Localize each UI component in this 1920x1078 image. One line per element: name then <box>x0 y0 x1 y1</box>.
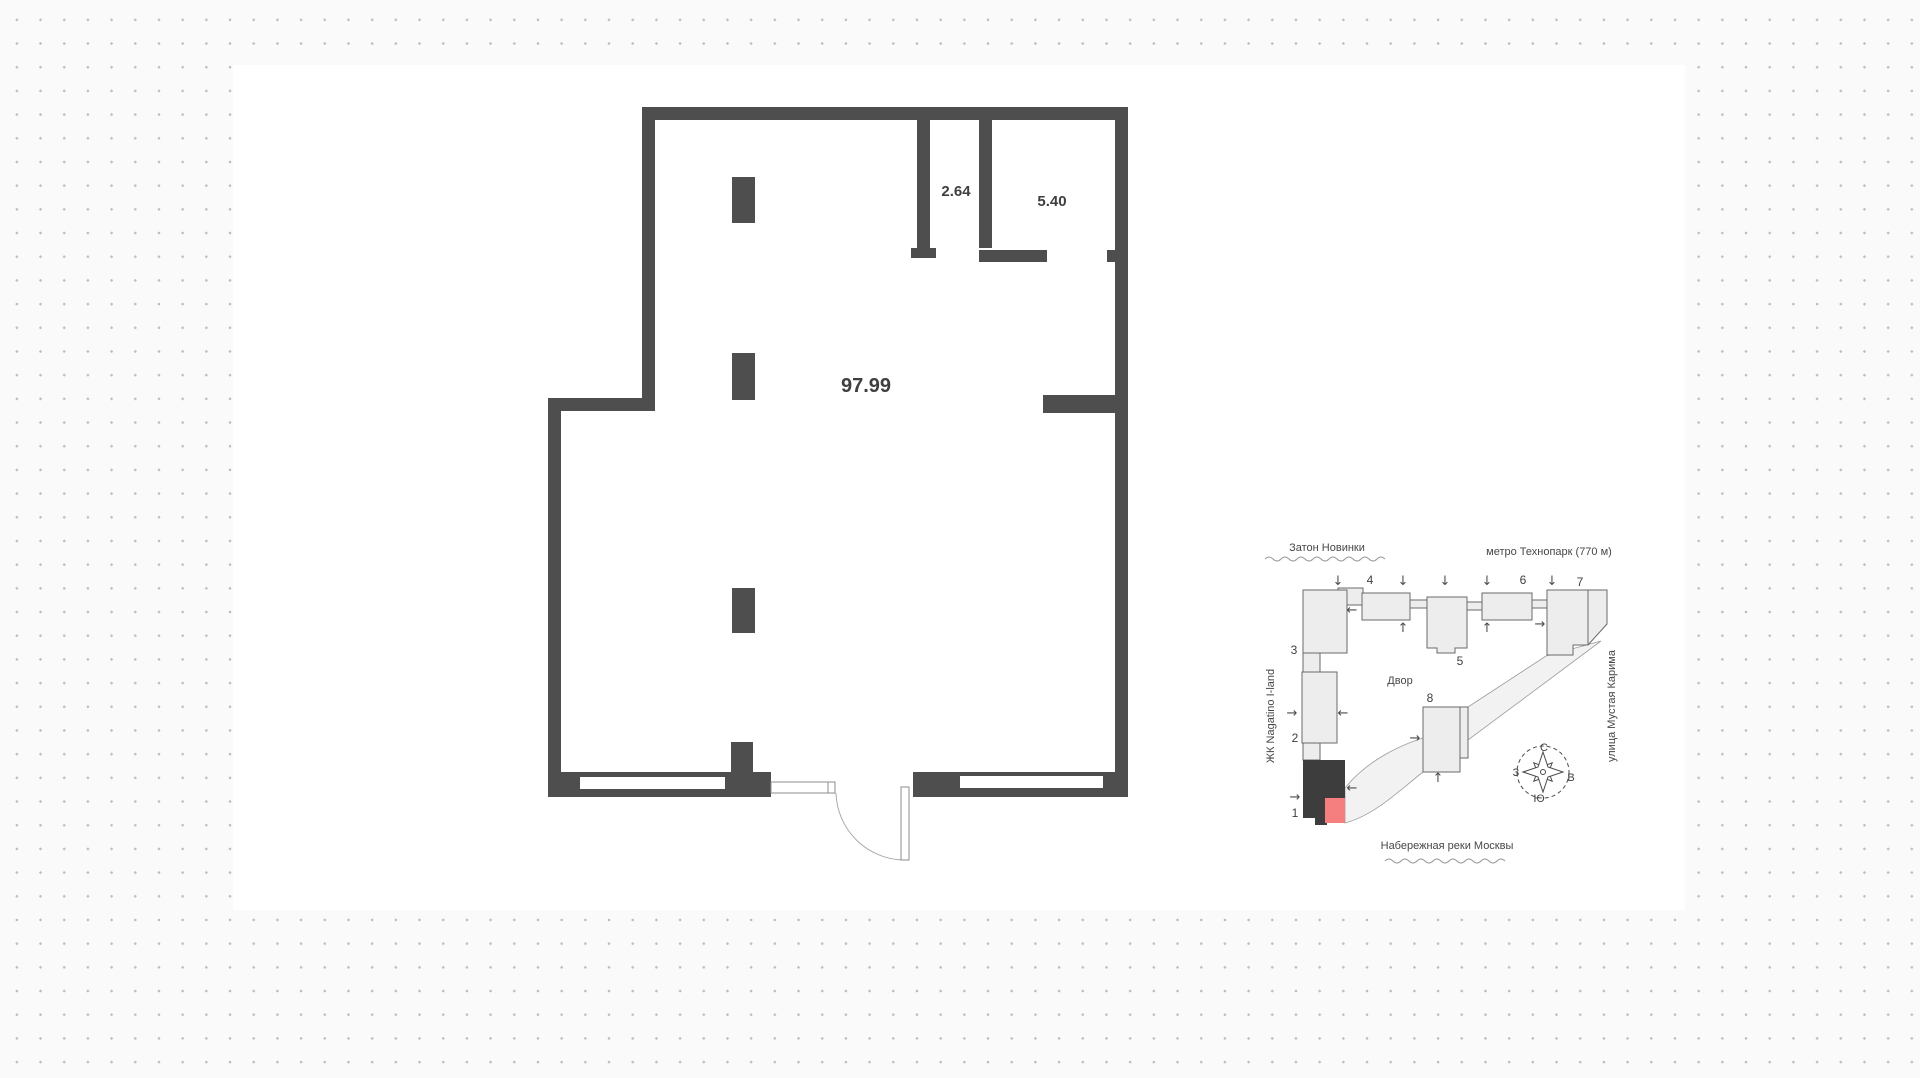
column <box>732 177 755 223</box>
site-building-8 <box>1423 707 1468 772</box>
arrow-left-icon: ← <box>1347 603 1358 618</box>
column-pier <box>731 742 753 772</box>
compass-north-label: С <box>1540 742 1548 754</box>
arrow-left-icon: ← <box>1347 781 1358 796</box>
arrow-up-icon: ↑ <box>1482 621 1493 636</box>
wall-divider-1 <box>917 120 930 257</box>
building-label-6: 6 <box>1520 573 1527 587</box>
wall-divider-1-cap <box>911 248 936 258</box>
floorplan-columns <box>731 177 755 772</box>
compass-west-label: З <box>1513 767 1520 779</box>
door-swing-arc <box>836 793 905 860</box>
arrow-down-icon: ↓ <box>1333 574 1344 589</box>
site-building-6 <box>1482 593 1532 620</box>
district-label: Затон Новинки <box>1289 542 1365 554</box>
water-wave-line <box>1385 859 1505 863</box>
building-connector <box>1467 602 1482 610</box>
site-building-2 <box>1302 672 1337 743</box>
roads <box>1345 641 1601 823</box>
arrow-right-icon: → <box>1290 790 1301 805</box>
page-background: 2.64 5.40 97.99 <box>0 0 1920 1078</box>
arrow-down-icon: ↓ <box>1398 574 1409 589</box>
arrow-down-icon: ↓ <box>1482 574 1493 589</box>
total-area-label: 97.99 <box>841 375 891 397</box>
arrow-right-icon: → <box>1410 731 1421 746</box>
compass-east-label: В <box>1567 772 1574 784</box>
column <box>732 588 755 633</box>
floorplan-walls <box>548 107 1128 797</box>
area-labels: 2.64 5.40 97.99 <box>841 183 1067 397</box>
wall-mid-stub <box>1043 395 1128 413</box>
door-leaf-fixed <box>771 782 835 793</box>
building-label-3: 3 <box>1291 643 1298 657</box>
room-area-label: 2.64 <box>941 183 971 200</box>
arrow-up-icon: ↑ <box>1398 621 1409 636</box>
embankment-label: Набережная реки Москвы <box>1381 840 1514 852</box>
building-label-4: 4 <box>1367 573 1374 587</box>
room-area-label: 5.40 <box>1037 193 1066 210</box>
arrow-up-icon: ↑ <box>1433 771 1444 786</box>
building-label-1: 1 <box>1292 806 1299 820</box>
arrow-right-icon: → <box>1287 706 1298 721</box>
water-wave-line <box>1265 557 1385 561</box>
windows <box>580 776 1103 789</box>
site-plan: Затон Новинки метро Технопарк (770 м) На… <box>1255 535 1650 880</box>
wall-right <box>1115 107 1128 797</box>
wall-room2-bottom <box>979 250 1047 262</box>
site-building-7 <box>1547 590 1607 655</box>
door-leaf-active <box>901 787 909 860</box>
building-connector <box>1303 743 1320 760</box>
complex-label: ЖК Nagatino I-land <box>1265 669 1277 763</box>
column <box>732 353 755 400</box>
building-label-5: 5 <box>1457 654 1464 668</box>
entrance-door <box>771 782 909 860</box>
building-connector <box>1410 600 1427 608</box>
arrow-left-icon: ← <box>1338 706 1349 721</box>
road-segment <box>1468 641 1601 740</box>
site-building-5 <box>1427 597 1467 653</box>
wall-step <box>548 398 655 411</box>
site-building-3 <box>1303 590 1347 653</box>
arrow-right-icon: → <box>1535 617 1546 632</box>
wall-left-upper <box>642 107 655 411</box>
wall-top <box>642 107 1128 120</box>
courtyard-label: Двор <box>1387 675 1412 687</box>
compass: С В Ю З <box>1513 742 1575 805</box>
window <box>580 777 725 789</box>
site-building-4 <box>1362 593 1410 620</box>
wall-right-nub <box>1107 250 1115 262</box>
arrow-down-icon: ↓ <box>1440 574 1451 589</box>
wall-left-lower <box>548 398 561 797</box>
compass-south-label: Ю <box>1533 793 1544 805</box>
building-label-2: 2 <box>1292 731 1299 745</box>
floor-plan: 2.64 5.40 97.99 <box>540 100 1140 870</box>
metro-label: метро Технопарк (770 м) <box>1486 546 1612 558</box>
street-label: улица Мустая Карима <box>1606 649 1618 762</box>
building-connector <box>1532 600 1548 608</box>
arrow-down-icon: ↓ <box>1547 574 1558 589</box>
building-label-7: 7 <box>1577 575 1584 589</box>
building-label-8: 8 <box>1427 691 1434 705</box>
compass-center-dot <box>1541 770 1546 775</box>
building-connector <box>1303 653 1320 672</box>
highlighted-unit[interactable] <box>1325 798 1345 823</box>
window <box>960 776 1103 788</box>
wall-divider-2 <box>979 120 992 248</box>
